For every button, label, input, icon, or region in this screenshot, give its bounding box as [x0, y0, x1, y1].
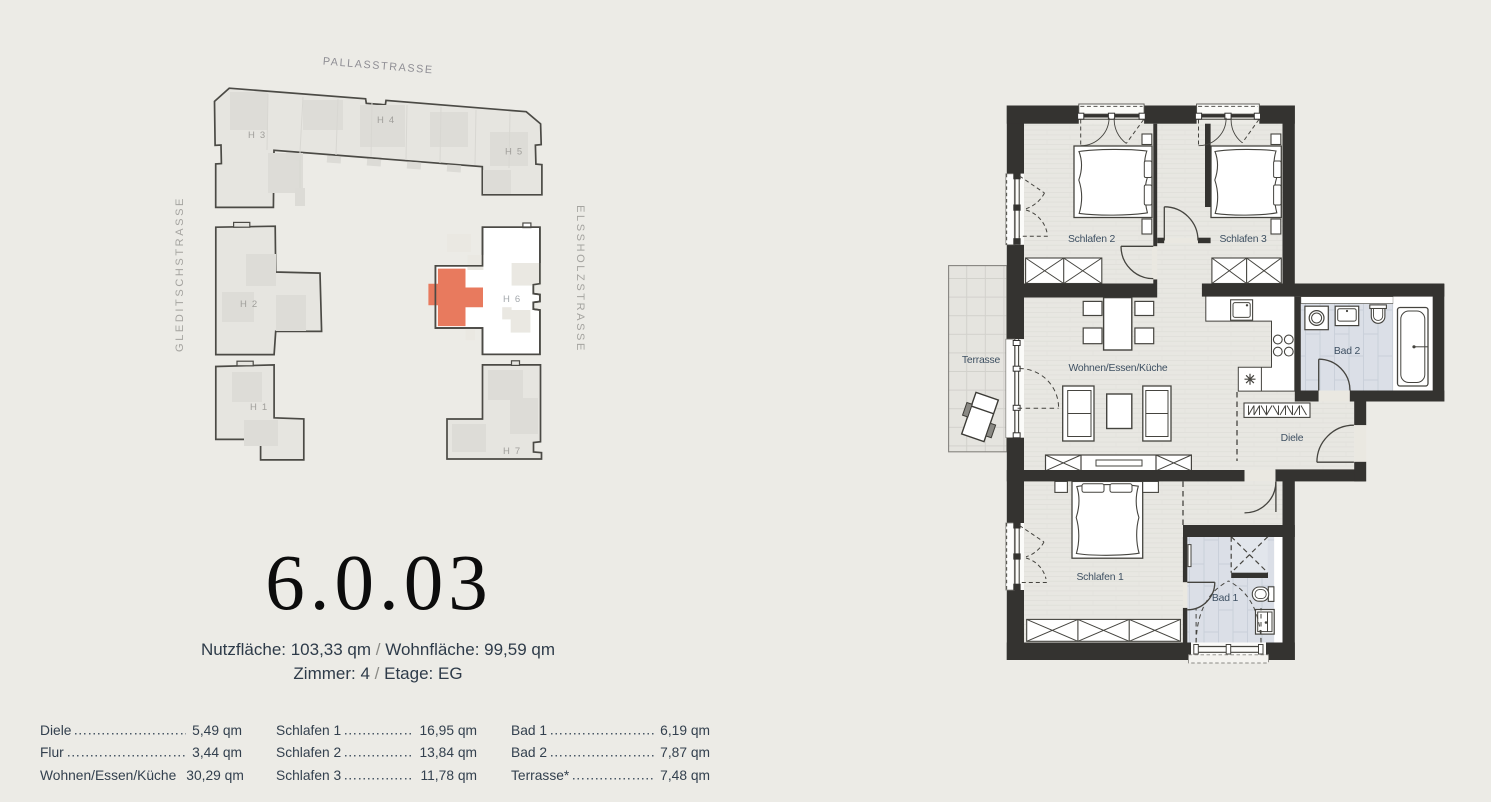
svg-text:H 4: H 4: [377, 115, 395, 126]
svg-text:H 6: H 6: [503, 294, 521, 305]
svg-text:Schlafen 2: Schlafen 2: [1068, 234, 1116, 245]
svg-text:Schlafen 1: Schlafen 1: [1076, 572, 1124, 583]
svg-text:H 2: H 2: [240, 299, 258, 310]
svg-text:H 5: H 5: [505, 147, 523, 158]
svg-text:Terrasse: Terrasse: [962, 355, 1001, 366]
svg-text:Bad 2: Bad 2: [1334, 346, 1361, 357]
svg-text:GLEDITSCHSTRASSE: GLEDITSCHSTRASSE: [174, 196, 186, 352]
svg-text:Schlafen 3: Schlafen 3: [1219, 234, 1267, 245]
svg-text:H 3: H 3: [248, 130, 266, 141]
svg-text:ELSSHOLZSTRASSE: ELSSHOLZSTRASSE: [574, 205, 586, 353]
svg-text:Bad 1: Bad 1: [1212, 593, 1239, 604]
svg-text:H 7: H 7: [503, 446, 521, 457]
svg-text:Wohnen/Essen/Küche: Wohnen/Essen/Küche: [1068, 363, 1167, 374]
svg-text:H 1: H 1: [250, 402, 268, 413]
svg-text:Diele: Diele: [1281, 433, 1304, 444]
